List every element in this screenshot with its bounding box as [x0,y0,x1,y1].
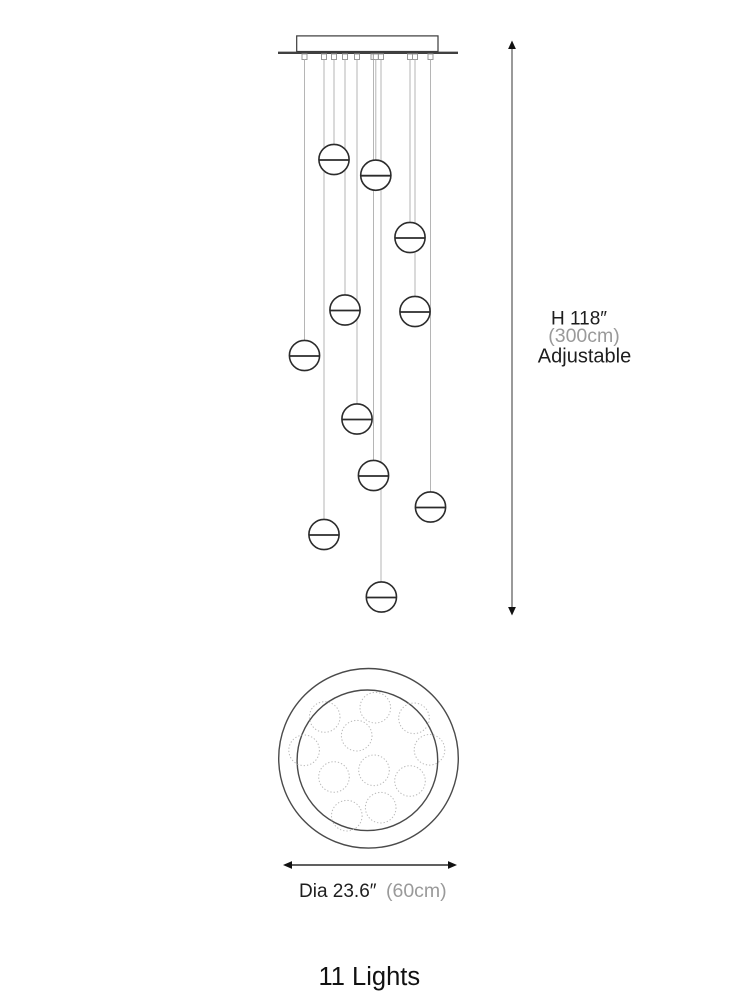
svg-text:Dia 23.6″(60cm): Dia 23.6″(60cm) [299,880,447,902]
svg-text:(300cm): (300cm) [548,325,620,347]
svg-text:Adjustable: Adjustable [538,346,631,368]
svg-text:11 Lights: 11 Lights [319,963,421,991]
